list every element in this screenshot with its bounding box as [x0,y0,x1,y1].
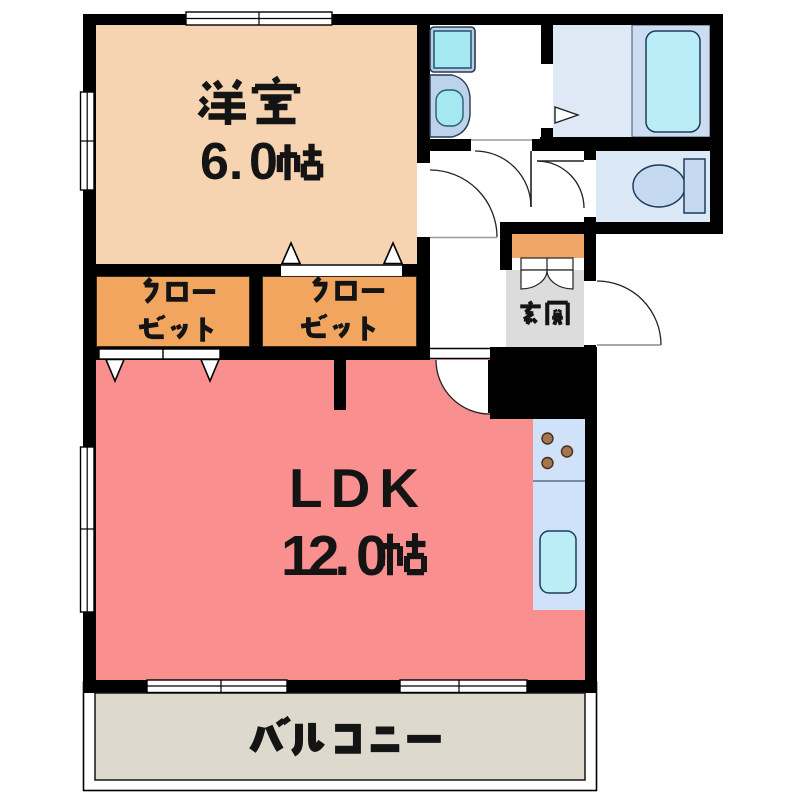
svg-text:0: 0 [249,133,278,191]
svg-text:12.: 12. [281,524,346,588]
svg-text:6.: 6. [200,133,243,191]
svg-text:L D K: L D K [289,457,419,519]
